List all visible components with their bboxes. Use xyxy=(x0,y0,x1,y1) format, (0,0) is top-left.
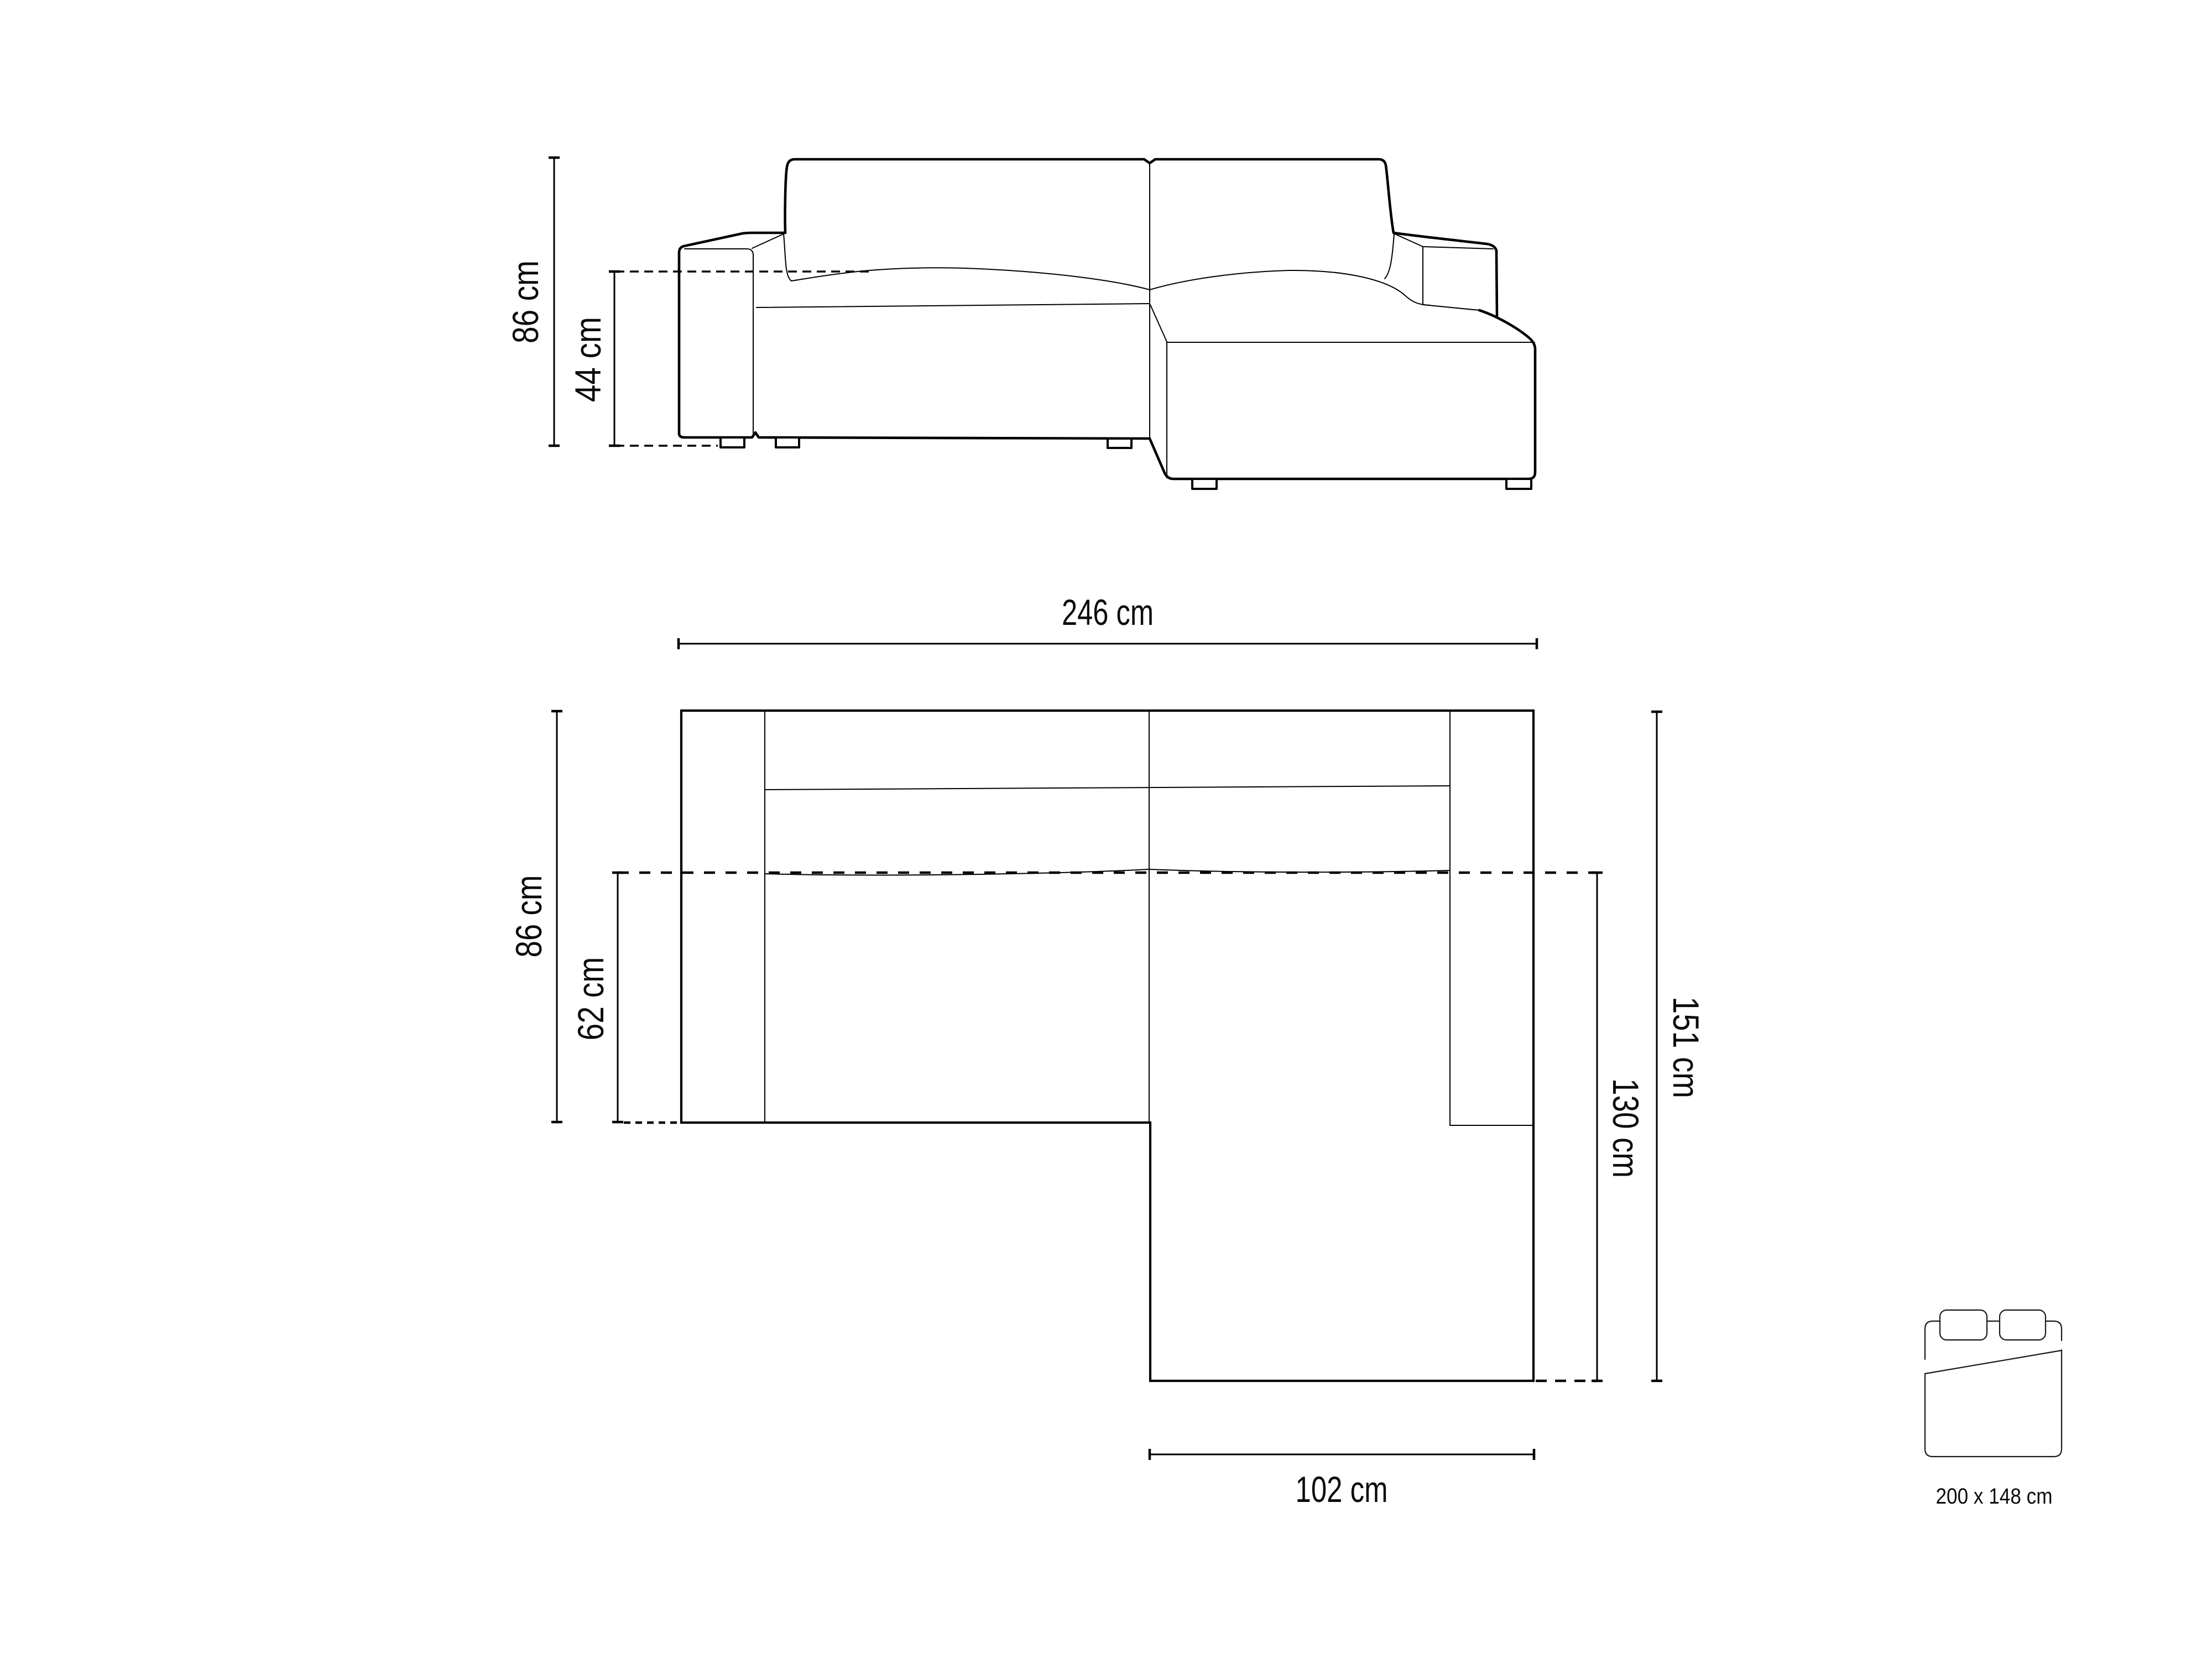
svg-text:44 cm: 44 cm xyxy=(567,317,608,402)
svg-text:151 cm: 151 cm xyxy=(1666,997,1707,1098)
svg-text:102 cm: 102 cm xyxy=(1296,1469,1388,1510)
svg-text:130 cm: 130 cm xyxy=(1605,1078,1646,1178)
svg-text:86 cm: 86 cm xyxy=(505,260,546,343)
svg-text:86 cm: 86 cm xyxy=(508,875,549,958)
svg-text:246 cm: 246 cm xyxy=(1062,592,1154,633)
svg-text:62 cm: 62 cm xyxy=(570,957,611,1041)
svg-text:200 x 148 cm: 200 x 148 cm xyxy=(1936,1484,2053,1509)
